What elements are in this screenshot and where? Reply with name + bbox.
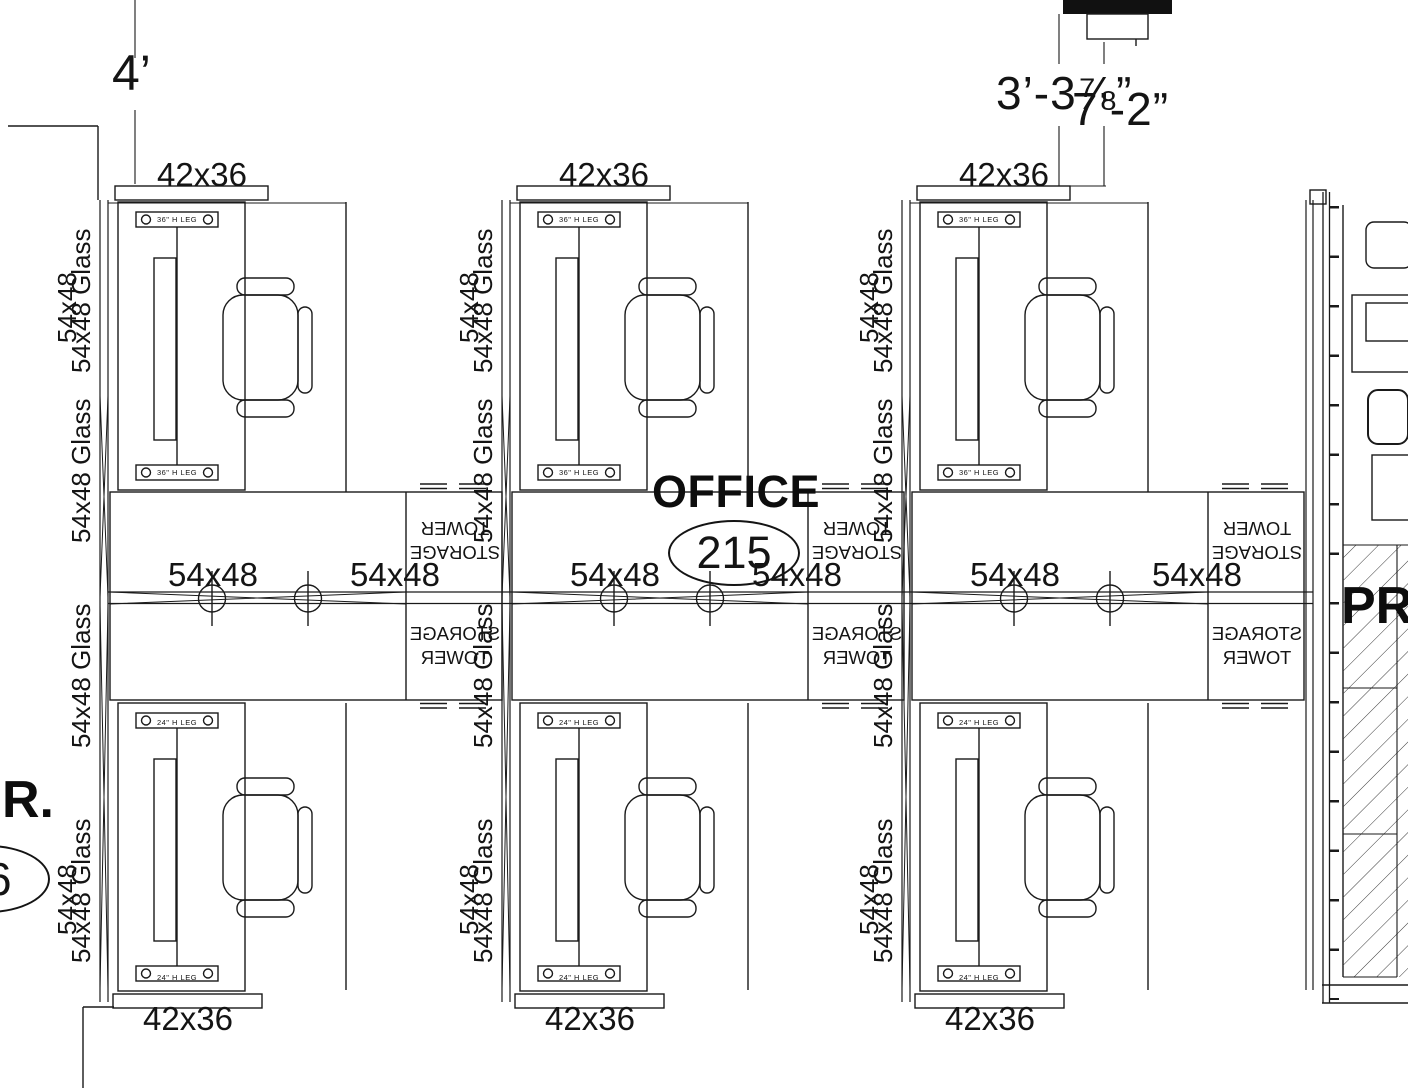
overhead-size-label-bottom: 42x36 (935, 1000, 1045, 1038)
glass-panel-size-label: 54x48 Glass (468, 600, 498, 752)
right-area-name: PR (1341, 576, 1408, 636)
glass-panel-size-label: 54x48 Glass (66, 600, 96, 752)
storage-word: STORAGE (1209, 540, 1305, 564)
desk-leg-tag: 36" H LEG (939, 213, 1019, 226)
desk-leg-tag: 36" H LEG (137, 466, 217, 479)
desk-leg-tag: 24" H LEG (539, 716, 619, 729)
glass-panel-size-label: 54x48 Glass (868, 600, 898, 752)
tower-word: TOWER (1209, 516, 1305, 540)
overhead-size-label-top: 42x36 (549, 156, 659, 194)
desk-leg-tag: 36" H LEG (137, 213, 217, 226)
glass-panel-size-label: 54x48 Glass (66, 815, 96, 967)
glass-panel-size-label: 54x48 Glass (868, 225, 898, 377)
desk-leg-tag: 36" H LEG (939, 466, 1019, 479)
desk-leg-tag: 24" H LEG (137, 716, 217, 729)
glass-panel-size-label: 54x48 Glass (468, 225, 498, 377)
glass-panel-size-label: 54x48 Glass (868, 815, 898, 967)
labels-layer: 4’ 3’-3⅞” 7’-2” OFFICE 215 R. 6 PR 42x36… (0, 0, 1408, 1088)
storage-word: STORAGE (1209, 622, 1305, 646)
workstation-cluster-labels: 42x36 42x36 36" H LEG 36" H LEG 24" H LE… (802, 0, 1322, 1088)
glass-panel-size-label: 54x48 Glass (66, 225, 96, 377)
desk-leg-tag: 24" H LEG (539, 971, 619, 984)
overhead-size-label-bottom: 42x36 (133, 1000, 243, 1038)
worksurface-size-label: 54x48 (167, 556, 259, 594)
glass-panel-size-label: 54x48 Glass (468, 395, 498, 547)
glass-panel-size-label: 54x48 Glass (468, 815, 498, 967)
overhead-size-label-bottom: 42x36 (535, 1000, 645, 1038)
overhead-size-label-top: 42x36 (949, 156, 1059, 194)
worksurface-size-label: 54x48 (569, 556, 661, 594)
worksurface-size-label: 54x48 (969, 556, 1061, 594)
glass-panel-size-label: 54x48 Glass (868, 395, 898, 547)
desk-leg-tag: 36" H LEG (539, 213, 619, 226)
storage-tower-label-top: STORAGE TOWER (1209, 516, 1305, 564)
overhead-size-label-top: 42x36 (147, 156, 257, 194)
desk-leg-tag: 36" H LEG (539, 466, 619, 479)
desk-leg-tag: 24" H LEG (137, 971, 217, 984)
desk-leg-tag: 24" H LEG (939, 716, 1019, 729)
glass-panel-size-label: 54x48 Glass (66, 395, 96, 547)
storage-tower-label-bottom: STORAGE TOWER (1209, 622, 1305, 670)
tower-word: TOWER (1209, 646, 1305, 670)
desk-leg-tag: 24" H LEG (939, 971, 1019, 984)
